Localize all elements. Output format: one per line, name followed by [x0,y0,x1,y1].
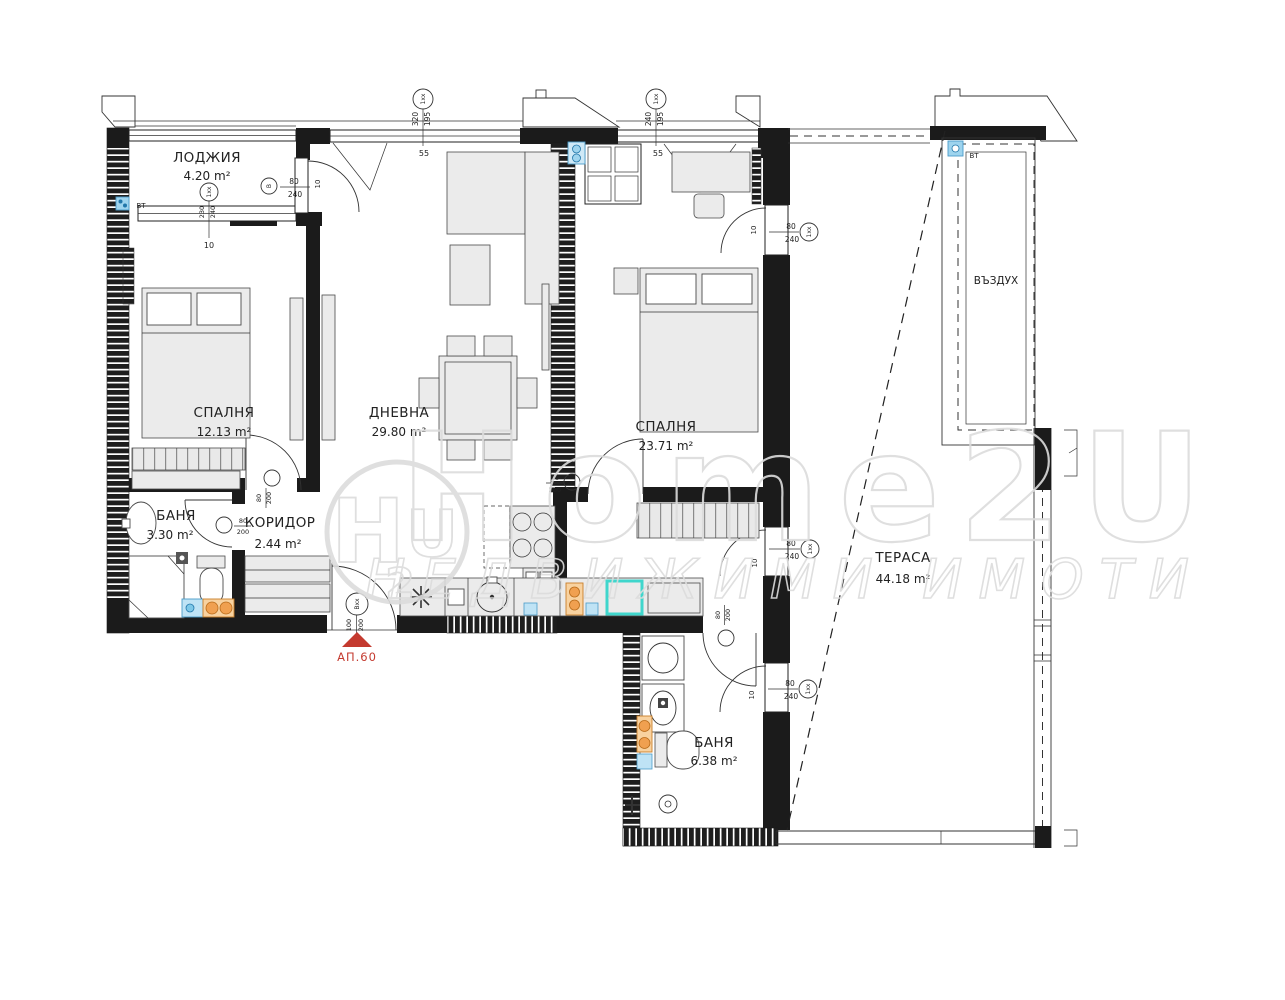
window-swing-symbol [333,143,387,190]
bt-icon [116,197,129,210]
duct-grid [585,144,641,204]
area-bedroom1: 12.13 m² [197,425,252,439]
dim: 80 [289,177,299,186]
dim: 200 [265,492,273,504]
area-bath2: 6.38 m² [690,754,737,768]
radiator-bedroom1 [123,248,134,304]
coffee-table [450,245,490,305]
dim: 195 [656,112,665,127]
tv [542,284,549,370]
dim: 10 [204,241,214,250]
dim: 230 [198,206,206,218]
dim: 240 [644,112,653,127]
watermark: H 2 U Home2U НЕДВИЖИМИ ИМОТИ [327,402,1220,611]
label-air-shaft: ВЪЗДУХ [974,275,1018,287]
dim: 240 [288,190,303,199]
desk [672,152,750,192]
entry-door-tag: Bxx [354,598,361,610]
terrace-railing-bottom [776,831,1035,844]
dim: 80 [785,679,795,688]
shower-icon [129,556,184,618]
floor-plan-svg: ЛОДЖИЯ 4.20 m² СПАЛНЯ 12.13 m² ДНЕВНА 29… [0,0,1285,1000]
watermark-subtitle: НЕДВИЖИМИ ИМОТИ [365,548,1205,611]
dim: 195 [423,112,432,127]
radiator-bedroom2 [752,148,761,204]
wardrobe-bedroom1 [132,448,245,470]
dim: 10 [748,691,756,700]
label-loggia: ЛОДЖИЯ [173,150,241,166]
toilet-icon [655,733,667,767]
door-tag: 1xx [805,683,812,694]
dim: 240 [785,235,800,244]
dim: 100 [345,619,353,631]
entrance-arrow-icon [342,632,372,647]
dim: 320 [411,112,420,127]
air-shaft [942,138,1035,445]
dim: 240 [209,206,217,218]
area-bath1: 3.30 m² [146,528,193,542]
dim: 200 [237,528,249,536]
dim: 80 [786,222,796,231]
toilet-icon [197,556,225,568]
dim: 80 [255,494,263,502]
dim: 10 [750,226,758,235]
label-bath1: БАНЯ [156,508,196,524]
label-corridor: КОРИДОР [245,515,316,531]
area-loggia: 4.20 m² [183,169,230,183]
door-tag: B [266,184,273,188]
dim: 10 [314,180,322,189]
dim: 80 [239,517,247,525]
bt-label: BT [969,152,979,160]
dim: 55 [653,149,663,158]
window-tag: 1xx [420,93,427,104]
label-bath2: БАНЯ [694,735,734,751]
label-bedroom1: СПАЛНЯ [194,405,255,421]
dim: 200 [357,619,365,631]
floor-drain-icon [659,795,677,813]
window-tag: 1xx [653,93,660,104]
dim: 240 [784,692,799,701]
door-tag: 1xx [806,226,813,237]
area-corridor: 2.44 m² [254,537,301,551]
apartment-number: АП.60 [337,650,377,664]
bt-label: BT [136,202,146,210]
sofa [447,152,525,234]
floor-plan-page: ЛОДЖИЯ 4.20 m² СПАЛНЯ 12.13 m² ДНЕВНА 29… [0,0,1285,1000]
dim: 55 [419,149,429,158]
window-tag: 1xx [206,186,213,197]
dim: 80 [714,611,722,619]
